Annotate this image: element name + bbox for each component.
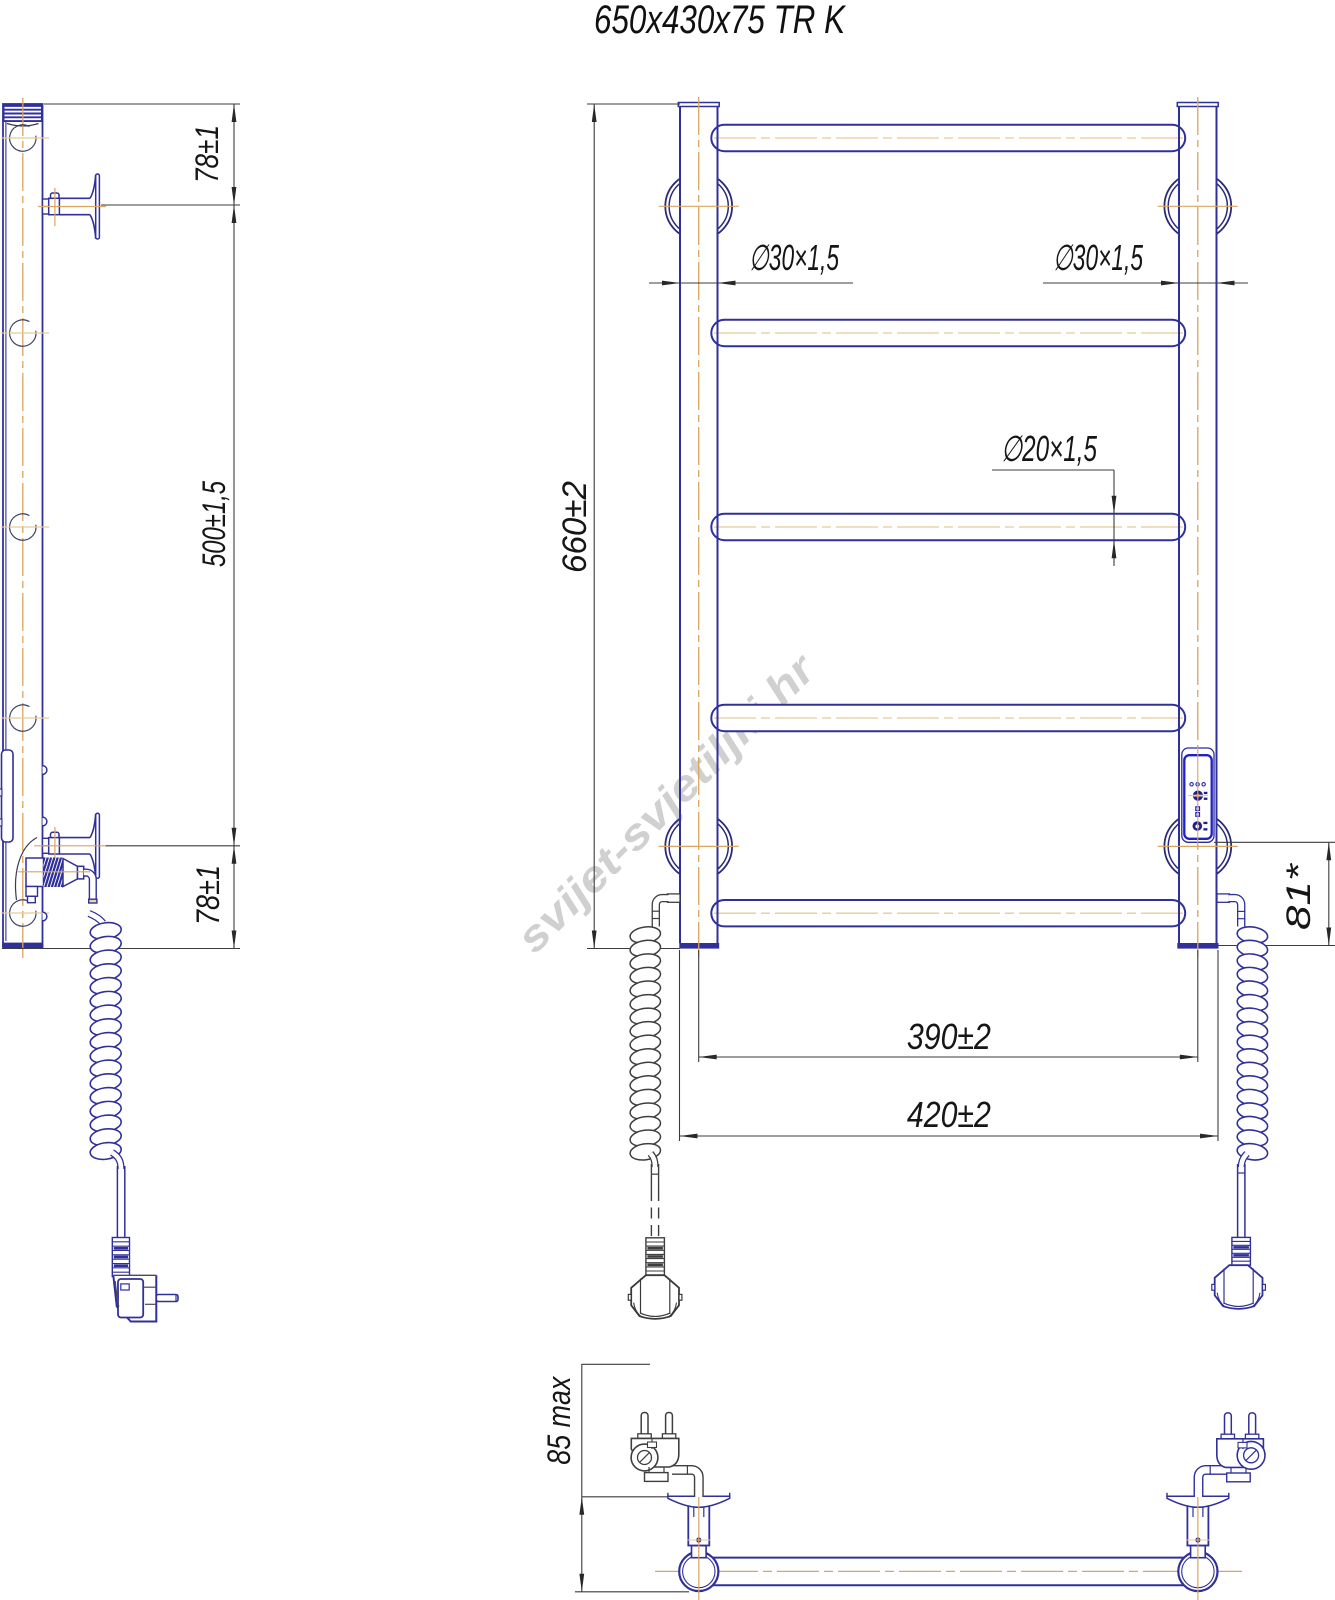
svg-text:∅20×1,5: ∅20×1,5 <box>1001 428 1098 469</box>
svg-text:660±2: 660±2 <box>556 481 594 573</box>
svg-text:81*: 81* <box>1280 862 1318 930</box>
svg-text:650x430x75 TR K: 650x430x75 TR K <box>594 0 847 42</box>
svg-text:390±2: 390±2 <box>907 1016 991 1057</box>
svg-text:420±2: 420±2 <box>907 1094 991 1135</box>
svg-text:85 max: 85 max <box>541 1376 577 1465</box>
svg-text:500±1,5: 500±1,5 <box>196 481 232 567</box>
svg-text:78±1: 78±1 <box>190 865 226 925</box>
svg-text:78±1: 78±1 <box>189 125 225 183</box>
svg-text:∅30×1,5: ∅30×1,5 <box>1053 237 1144 278</box>
svg-text:∅30×1,5: ∅30×1,5 <box>749 237 840 278</box>
